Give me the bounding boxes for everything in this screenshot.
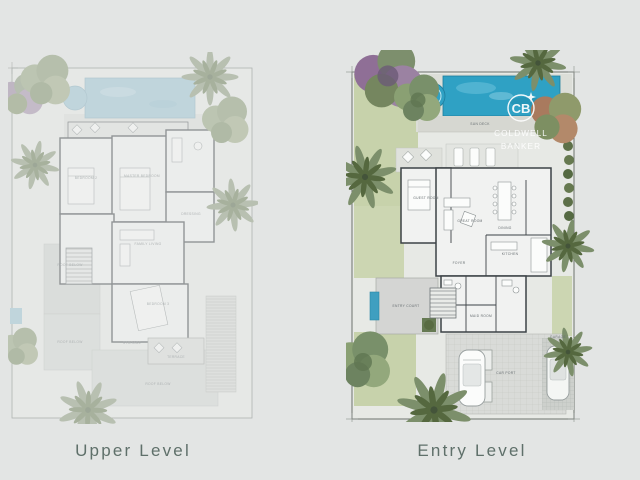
caption-entry-level: Entry Level [367,441,577,461]
stairs [430,288,456,318]
room-label: ROOF BELOW [57,340,83,344]
room-label: GUEST ROOM [413,196,438,200]
room-label: DINING [498,226,511,230]
upper-level-faded-group: BEDROOM 2 MASTER BEDROOM DRESSING FAMILY… [8,52,258,424]
room-label: FOYER [453,261,466,265]
room-label: BEDROOM 2 [75,176,98,180]
room-label: TERRACE [167,355,185,359]
caption-upper-level: Upper Level [28,441,238,461]
room-label: STORAGE [123,341,142,345]
room-label: MAID ROOM [470,314,492,318]
cb-monogram: CB [512,101,531,116]
room-label: KITCHEN [502,252,519,256]
floor-plan-upper-level: BEDROOM 2 MASTER BEDROOM DRESSING FAMILY… [8,52,258,424]
room-label: DRESSING [181,212,201,216]
watermark-line2: BANKER [501,142,541,151]
car [459,350,485,406]
upper-level-drawing: BEDROOM 2 MASTER BEDROOM DRESSING FAMILY… [8,52,258,424]
room-label: BEDROOM 3 [147,302,170,306]
room-label: GARAGE [550,335,566,339]
watermark-line1: COLDWELL [494,129,548,138]
pergola-deck [206,296,236,392]
room-label: ROOF BELOW [145,382,171,386]
room-label: ENTRY COURT [393,304,420,308]
room-label: MASTER BEDROOM [124,174,160,178]
room-label: CAR PORT [496,371,515,375]
room-label: SUN DECK [470,122,490,126]
room-label: ROOF BELOW [57,263,83,267]
room-label: GREAT ROOM [457,219,482,223]
floor-plan-entry-level: GUEST ROOM GREAT ROOM DINING KITCHEN FOY… [346,50,596,422]
page-background: BEDROOM 2 MASTER BEDROOM DRESSING FAMILY… [0,0,640,480]
entry-level-drawing: GUEST ROOM GREAT ROOM DINING KITCHEN FOY… [346,50,596,422]
neighbour-pool [10,308,22,324]
room-label: FAMILY LIVING [134,242,161,246]
